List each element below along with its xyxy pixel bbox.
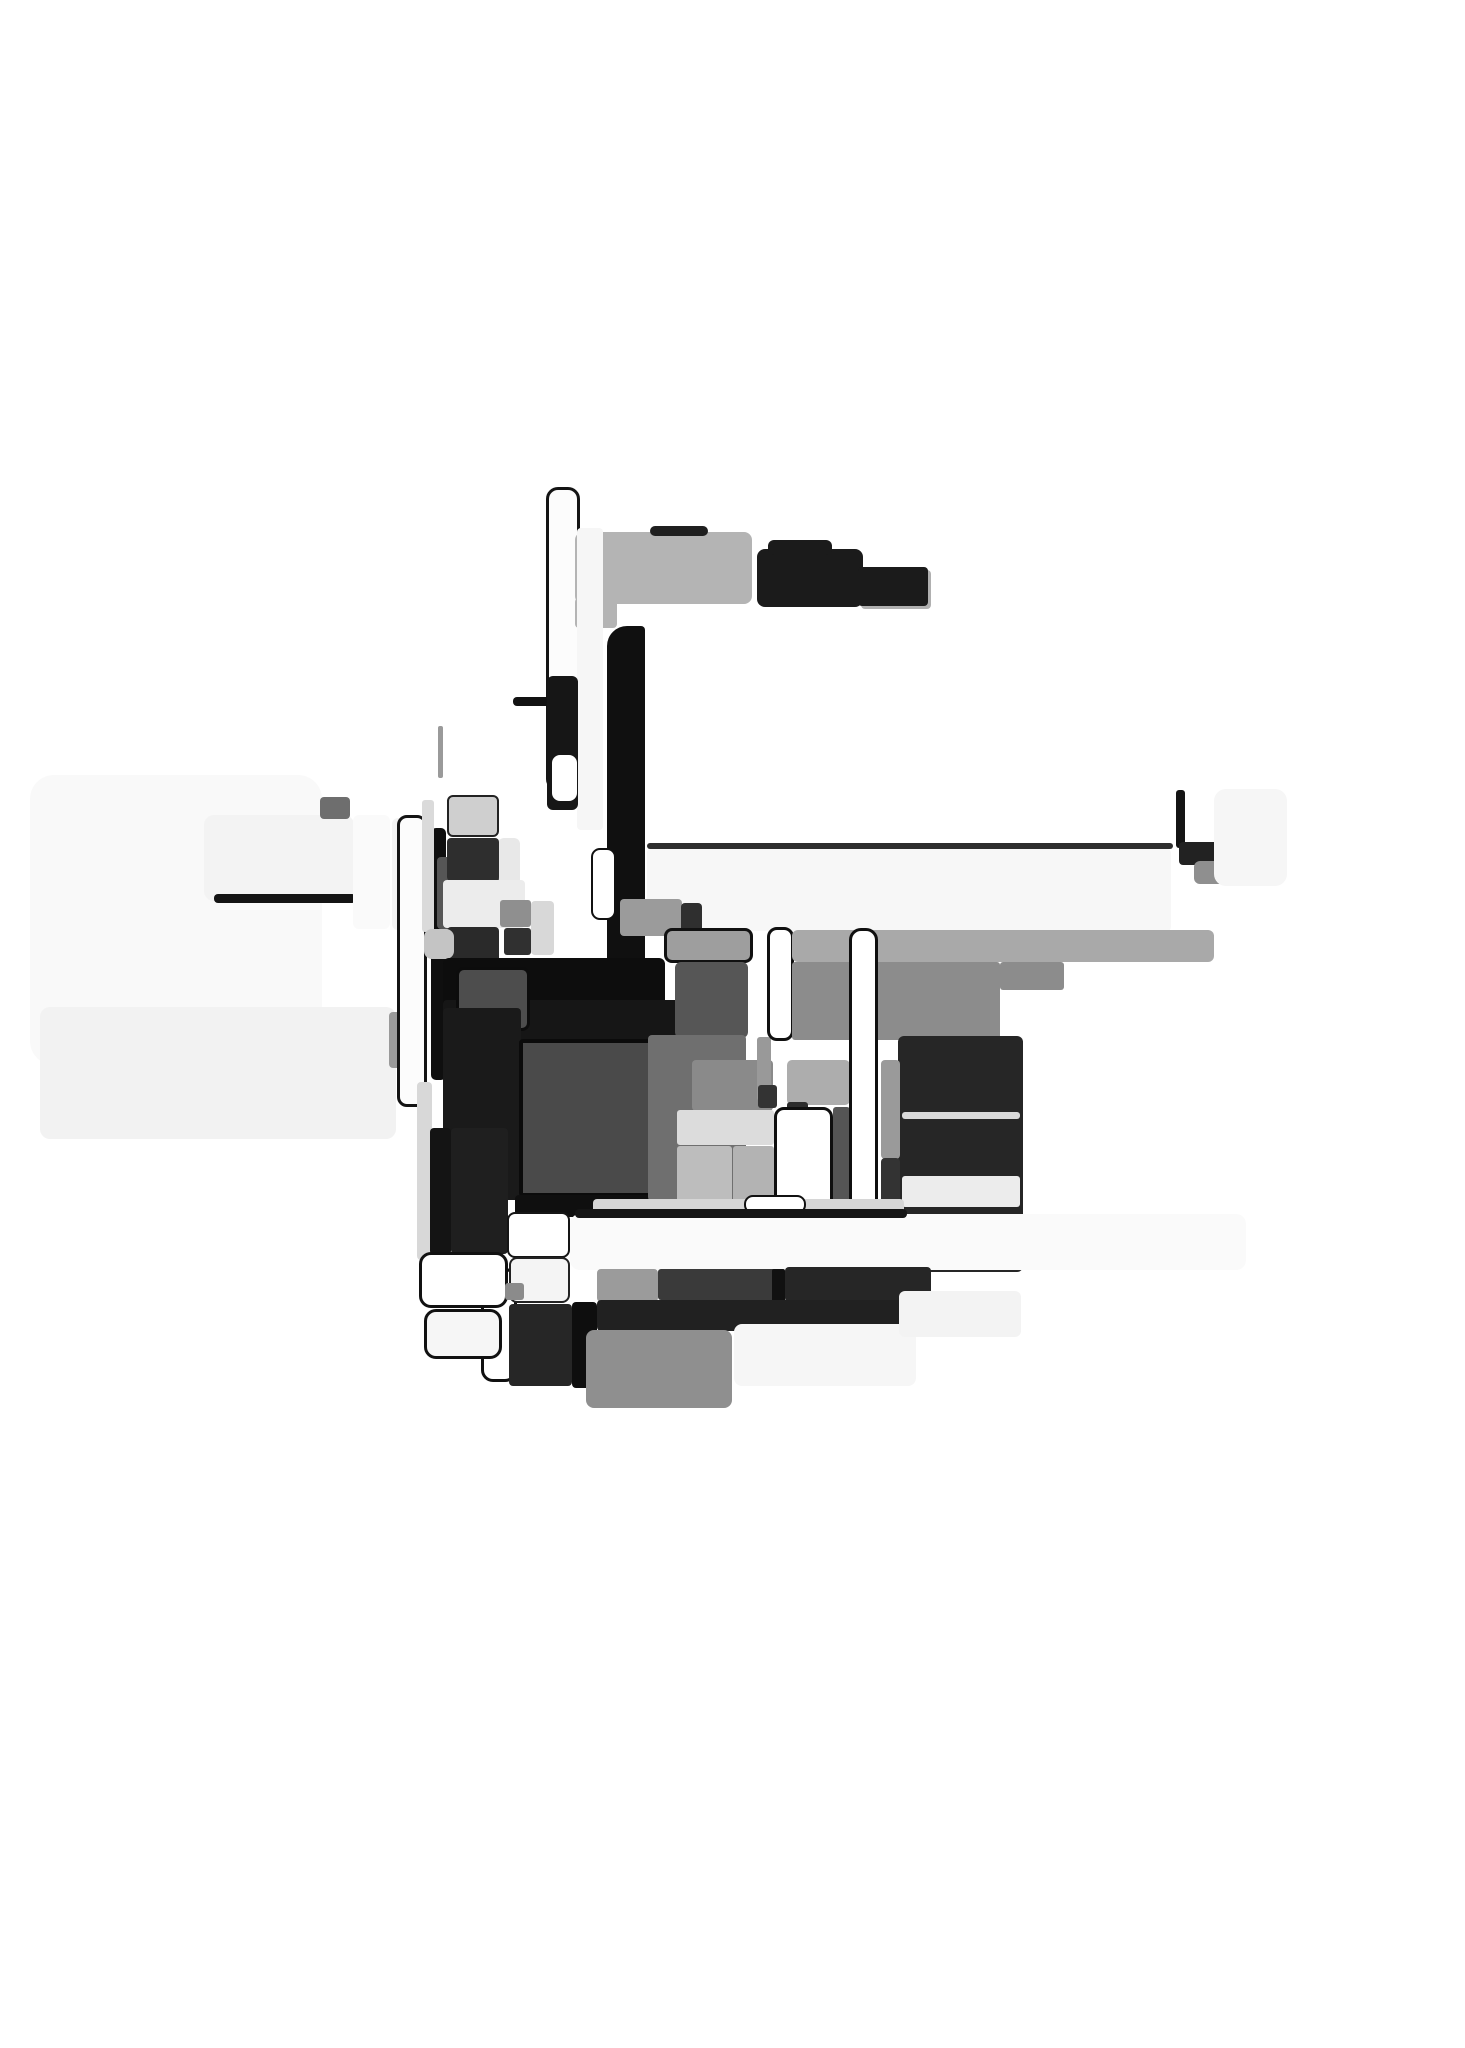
pale-card-edge (214, 894, 356, 903)
pale-strip-mid (577, 528, 603, 830)
faint-line (438, 726, 443, 778)
artwork-canvas (0, 0, 1465, 2048)
pale-card (204, 815, 354, 901)
gray-slab (792, 962, 1000, 1040)
light-block (447, 795, 499, 837)
dark-block-lower (451, 1128, 508, 1254)
pale-square (1214, 789, 1287, 886)
dark-col-light-line (902, 1112, 1020, 1119)
bottom-gray-tongue (586, 1330, 732, 1408)
black-bar-lower (430, 1128, 451, 1255)
white-notch (552, 755, 577, 801)
dark-col-light-band (902, 1176, 1020, 1207)
bottom-white-slab (734, 1324, 916, 1386)
dark-block-a (447, 838, 499, 881)
big-white-slab (570, 1214, 1246, 1270)
pale-column-a (353, 815, 390, 929)
dark-tall-block (509, 1304, 572, 1386)
dark-chip-a (504, 928, 531, 955)
right-thin-line (647, 843, 1173, 849)
light-band (677, 1110, 774, 1145)
pale-sliver-2 (422, 800, 434, 932)
top-dark-edge (650, 526, 708, 536)
gray-chip-b (597, 1269, 658, 1302)
small-dark-chip (320, 797, 350, 819)
black-strip (772, 1269, 785, 1302)
gray-cap-inner (675, 962, 748, 1038)
gray-wedge (424, 929, 454, 959)
right-pale-field (647, 849, 1171, 931)
black-step-bump (768, 540, 832, 555)
gray-slab-step (1000, 962, 1064, 990)
gray-chip-c (505, 1283, 524, 1300)
gray-panel-a (677, 1146, 732, 1204)
thick-black-border-bar (607, 626, 645, 996)
dark-strip (833, 1107, 850, 1212)
gray-chip-a (500, 900, 531, 927)
white-pill-d (419, 1252, 508, 1308)
left-pale-band (40, 1007, 396, 1139)
gray-bar-vertical (881, 1060, 900, 1159)
slab-dark-edge (575, 1209, 907, 1218)
white-pill-a (767, 927, 794, 1041)
white-slab-b (507, 1212, 570, 1258)
hook-vertical (1176, 790, 1185, 848)
light-chip (531, 901, 554, 955)
bottom-pale-slab (899, 1291, 1021, 1337)
gray-block-d (787, 1060, 850, 1105)
white-pill-e (424, 1309, 502, 1359)
dark-row-a (658, 1269, 784, 1300)
dark-chip-c (758, 1085, 777, 1108)
black-step-right (858, 567, 928, 606)
small-white-pill (591, 848, 616, 920)
gray-cap (664, 928, 753, 963)
black-step-main (757, 549, 863, 607)
